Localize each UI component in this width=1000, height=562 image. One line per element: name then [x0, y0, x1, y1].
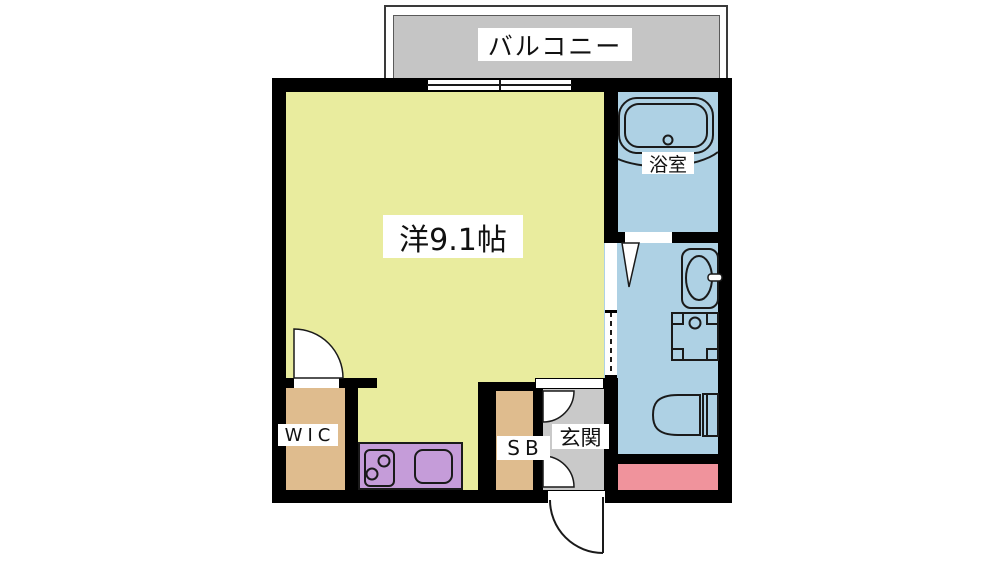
- balcony-label: バルコニー: [478, 28, 632, 61]
- porch-strip: [618, 464, 718, 490]
- wall-bathroom-left: [604, 92, 618, 243]
- wall-right: [718, 78, 732, 503]
- wall-wic-right: [345, 378, 358, 490]
- entrance-step: [535, 378, 604, 389]
- wall-bottom: [272, 490, 732, 503]
- washroom-sliding-door: [605, 243, 617, 312]
- main-room-label: 洋9.1帖: [383, 215, 523, 258]
- floor-plan: バルコニー 洋9.1帖 浴室 WIC SB 玄関: [0, 0, 1000, 562]
- wic-label: WIC: [278, 424, 338, 446]
- washroom-sliding-track: [605, 312, 617, 378]
- wall-porch-divider: [618, 454, 718, 464]
- entrance-label: 玄関: [552, 424, 609, 449]
- shoe-box-label: SB: [497, 436, 550, 460]
- entrance-door-opening: [548, 491, 605, 503]
- bathroom-label: 浴室: [642, 152, 694, 174]
- wic-door-opening: [294, 378, 339, 388]
- entrance-door-arc: [550, 497, 603, 553]
- balcony-window: [427, 79, 572, 91]
- wall-wic-stub-left: [286, 378, 294, 388]
- wall-sb-top: [478, 382, 535, 391]
- bathroom-door-opening: [625, 232, 672, 243]
- kitchen-counter: [358, 442, 463, 490]
- wall-sb-left: [478, 382, 496, 490]
